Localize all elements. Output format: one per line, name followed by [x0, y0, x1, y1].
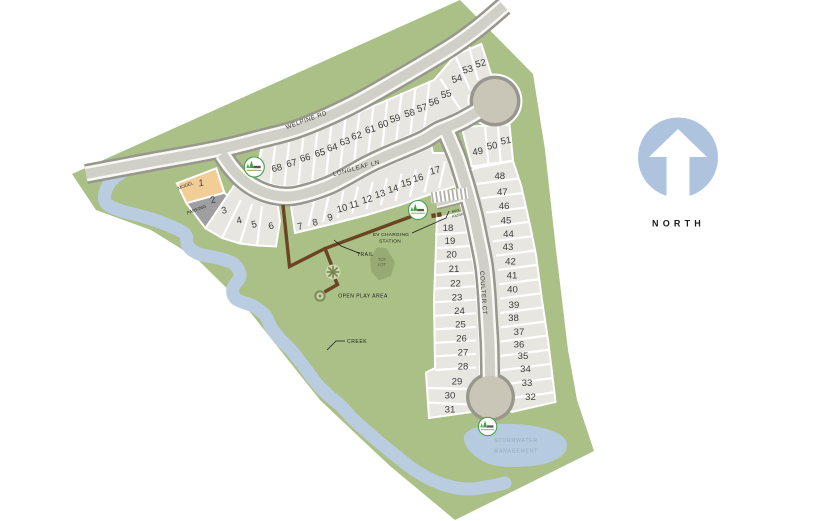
svg-text:49: 49 — [472, 146, 484, 159]
svg-text:47: 47 — [497, 187, 508, 198]
svg-text:EV CHARGING: EV CHARGING — [373, 232, 409, 238]
svg-text:21: 21 — [449, 264, 460, 275]
svg-text:42: 42 — [505, 257, 516, 268]
svg-text:23: 23 — [452, 293, 463, 304]
svg-text:24: 24 — [454, 306, 465, 317]
svg-text:44: 44 — [503, 229, 514, 240]
svg-text:28: 28 — [458, 362, 469, 373]
svg-text:CREEK: CREEK — [347, 339, 367, 345]
svg-text:41: 41 — [507, 271, 518, 282]
svg-text:46: 46 — [499, 201, 510, 212]
svg-text:27: 27 — [458, 348, 469, 359]
svg-text:29: 29 — [452, 377, 463, 388]
svg-text:30: 30 — [445, 391, 456, 402]
svg-text:NORTH: NORTH — [652, 219, 705, 229]
svg-text:20: 20 — [446, 250, 457, 261]
svg-text:33: 33 — [522, 378, 533, 389]
svg-text:STATION: STATION — [379, 239, 401, 245]
svg-text:26: 26 — [456, 334, 467, 345]
svg-text:22: 22 — [450, 279, 461, 290]
svg-text:19: 19 — [445, 236, 456, 247]
svg-text:40: 40 — [507, 285, 518, 296]
svg-text:39: 39 — [509, 300, 520, 311]
svg-text:25: 25 — [455, 320, 466, 331]
svg-text:STORMWATER: STORMWATER — [494, 438, 537, 444]
svg-text:34: 34 — [520, 364, 531, 375]
svg-text:50: 50 — [486, 140, 498, 153]
svg-text:37: 37 — [514, 327, 525, 338]
svg-text:48: 48 — [494, 171, 505, 182]
svg-text:32: 32 — [525, 392, 536, 403]
svg-text:43: 43 — [503, 242, 514, 253]
svg-text:LOT: LOT — [378, 262, 387, 267]
svg-text:51: 51 — [500, 135, 512, 148]
svg-text:31: 31 — [445, 405, 456, 416]
svg-text:45: 45 — [501, 216, 512, 227]
svg-text:OPEN PLAY AREA: OPEN PLAY AREA — [338, 294, 388, 300]
svg-text:38: 38 — [508, 313, 519, 324]
svg-text:35: 35 — [518, 351, 529, 362]
svg-text:36: 36 — [514, 340, 525, 351]
svg-text:MANAGEMENT: MANAGEMENT — [494, 449, 538, 455]
svg-text:18: 18 — [443, 223, 454, 234]
